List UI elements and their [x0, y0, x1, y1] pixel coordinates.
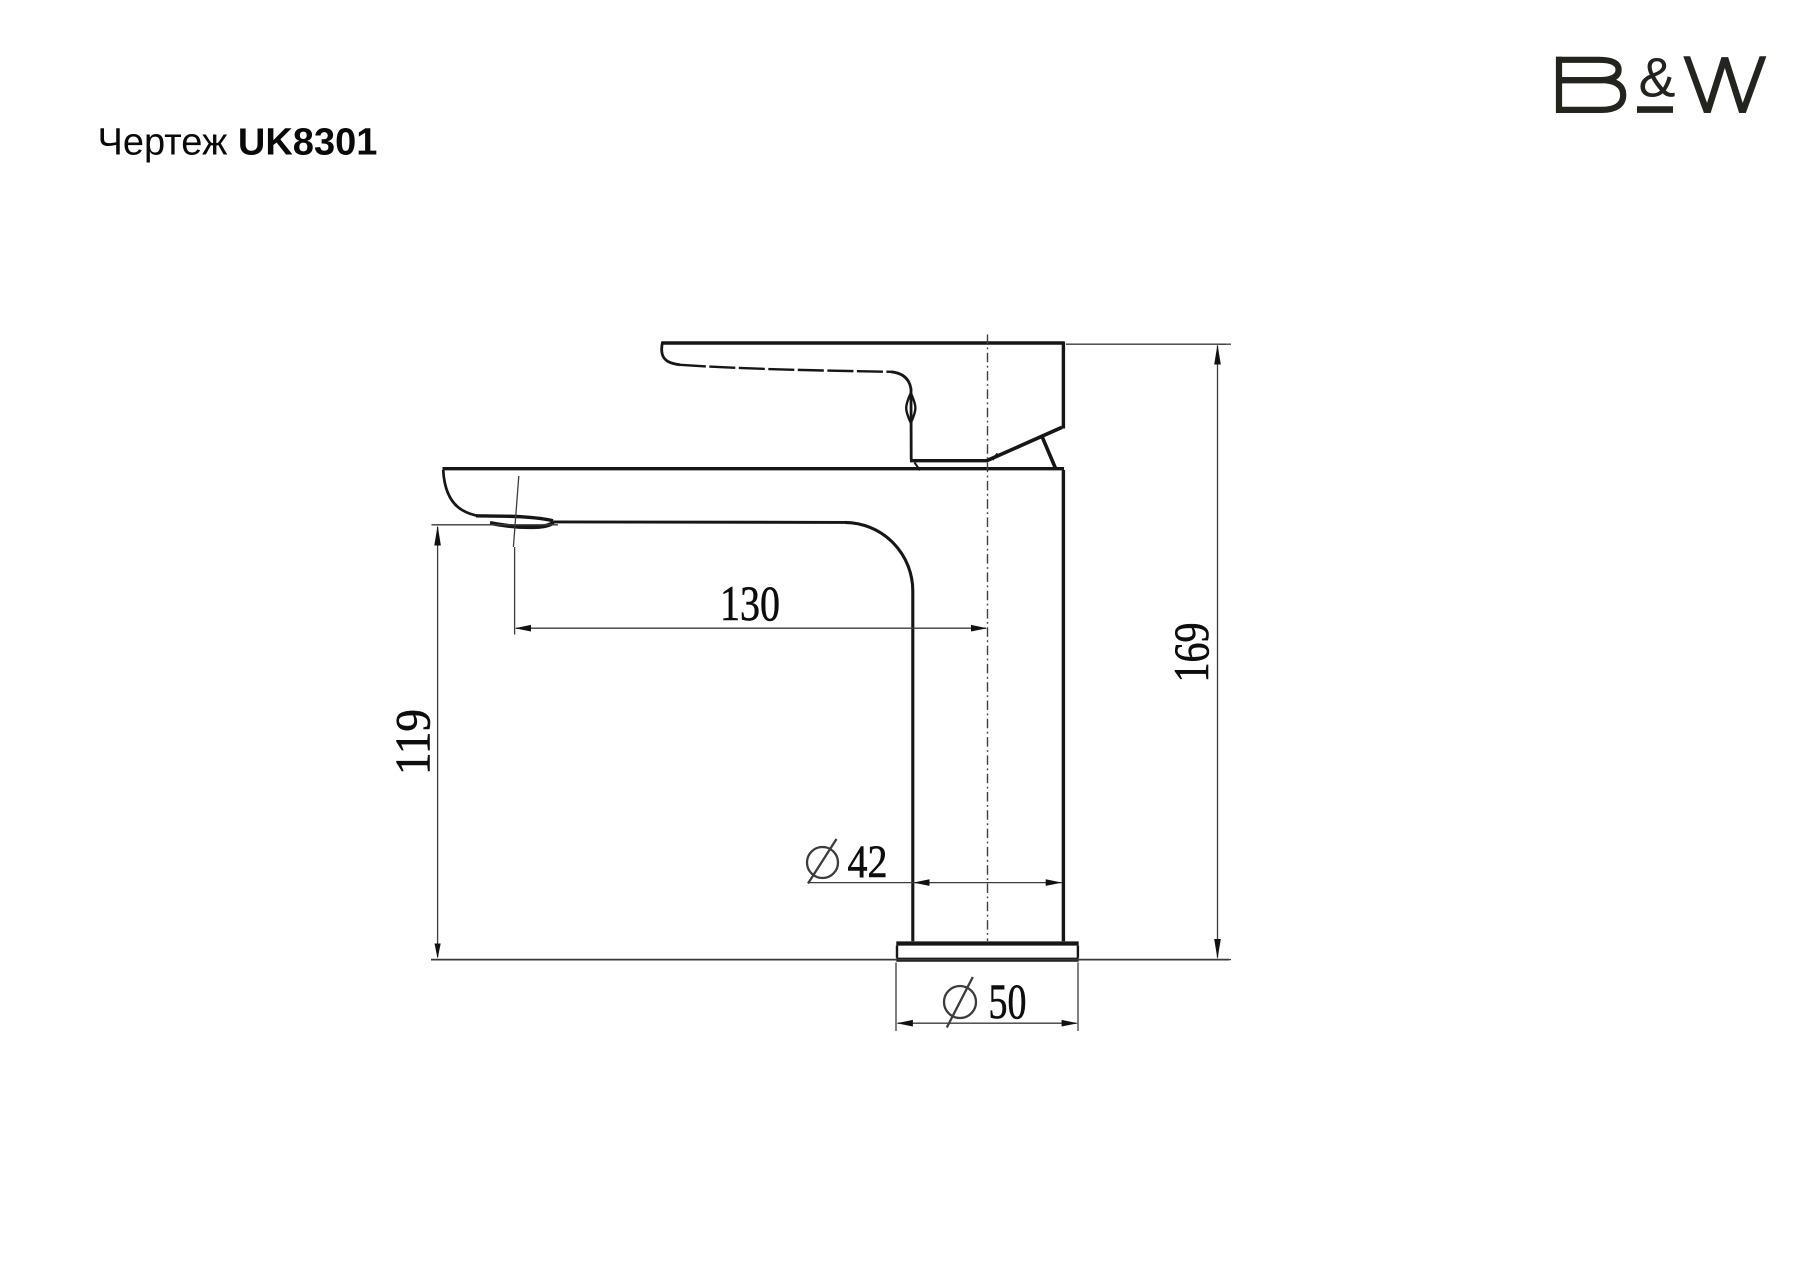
svg-text:42: 42: [848, 837, 888, 888]
svg-text:169: 169: [1163, 623, 1219, 683]
svg-text:50: 50: [989, 973, 1027, 1029]
svg-text:130: 130: [720, 575, 780, 631]
svg-text:Чертеж UK8301: Чертеж UK8301: [98, 122, 378, 164]
svg-text:&: &: [1639, 46, 1676, 108]
svg-text:119: 119: [385, 709, 441, 775]
